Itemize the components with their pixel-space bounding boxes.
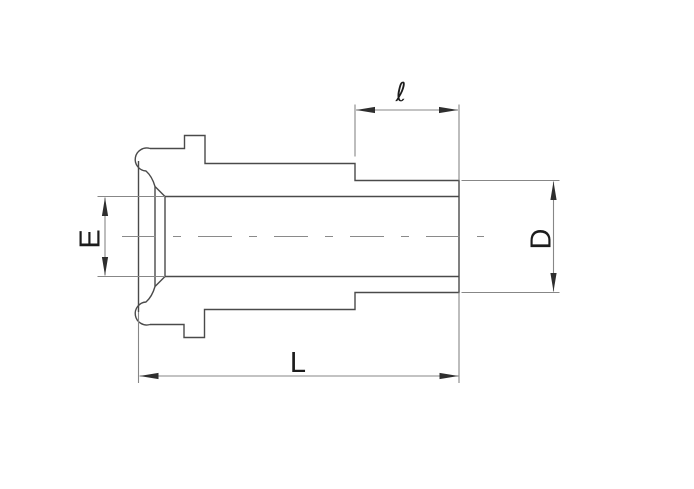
arrowhead-right	[439, 107, 458, 113]
technical-drawing-canvas: ℓ E D L	[0, 0, 694, 489]
dimension-label-bore: E	[75, 229, 107, 248]
dimension-label-outer-diameter: D	[526, 229, 558, 250]
arrowhead-up	[550, 182, 556, 201]
bore-chamfer-bottom	[155, 277, 165, 287]
dimension-label-overall-length: L	[290, 347, 306, 379]
arrowhead-down	[102, 257, 108, 276]
dimension-stub-length: ℓ	[355, 78, 459, 181]
dimension-label-stub-length: ℓ	[395, 78, 407, 108]
arrowhead-down	[550, 273, 556, 292]
arrowhead-left	[140, 373, 159, 379]
dimension-outer-diameter: D	[462, 181, 560, 293]
arrowhead-up	[102, 198, 108, 217]
arrowhead-left	[356, 107, 375, 113]
bore-chamfer-top	[155, 187, 165, 197]
arrowhead-right	[440, 373, 459, 379]
tube-gland-section-drawing: ℓ E D L	[0, 0, 694, 489]
